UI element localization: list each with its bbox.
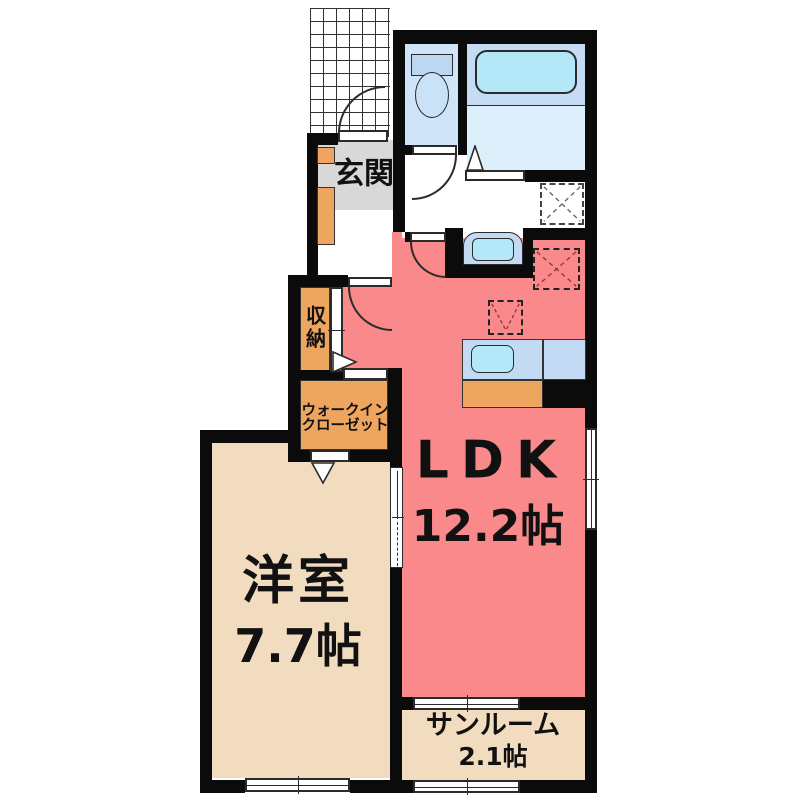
wall-segment	[520, 697, 585, 710]
ldk-side-window	[585, 428, 597, 530]
toilet-bowl	[415, 72, 449, 118]
wall-segment	[200, 430, 297, 443]
sunroom-top-window	[413, 697, 520, 710]
shoe-cabinet	[317, 187, 335, 245]
sunroom-label: サンルーム	[426, 712, 560, 740]
toilet-door-leaf	[412, 145, 457, 155]
sliding-door-panel	[397, 471, 398, 519]
wic-door-triangle-icon	[310, 462, 336, 485]
sunroom-size: 2.1帖	[458, 744, 527, 770]
wall-segment	[585, 530, 597, 793]
wall-segment	[393, 30, 597, 44]
shoe-cabinet	[317, 147, 335, 164]
room-ldk-neck	[392, 232, 402, 287]
wall-segment	[288, 275, 300, 462]
wall-segment	[543, 380, 586, 408]
wall-segment	[393, 30, 405, 232]
sunroom-bottom-window	[413, 780, 520, 793]
wall-segment	[445, 264, 533, 278]
storage-label: 収納	[304, 305, 325, 351]
floor-plan: 玄関 収納 ウォークイン クローゼット LDK 12.2帖 洋室 7.7帖 サン…	[0, 0, 800, 800]
wall-segment	[388, 368, 402, 462]
ldk-label: LDK	[416, 434, 569, 489]
wall-segment	[530, 228, 585, 240]
western-ldk-sliding-door	[390, 467, 403, 568]
refrigerator-space	[533, 248, 580, 290]
entrance-label: 玄関	[334, 158, 394, 190]
bathtub	[475, 50, 577, 94]
equipment-space-marker	[488, 300, 523, 335]
western-room-label: 洋室	[242, 555, 354, 610]
western-room-window	[245, 778, 350, 792]
wic-top-opening	[343, 368, 388, 380]
wall-segment	[585, 30, 597, 428]
washbasin-bowl	[472, 238, 514, 261]
wall-segment	[350, 780, 413, 793]
sliding-door-panel	[397, 522, 398, 566]
bathroom-folding-door-icon	[465, 145, 487, 172]
wall-segment	[458, 44, 467, 155]
kitchen-counter-side	[543, 339, 586, 380]
wall-segment	[390, 568, 402, 793]
wic-bottom-door	[310, 450, 350, 462]
wall-segment	[405, 145, 412, 155]
wall-segment	[520, 780, 597, 793]
wic-label: ウォークイン クローゼット	[302, 404, 389, 434]
wall-segment	[200, 430, 212, 793]
hall-ldk-door-leaf	[348, 277, 392, 287]
toilet-door-swing	[412, 155, 457, 200]
washing-machine-space	[540, 183, 584, 225]
ldk-size: 12.2帖	[412, 504, 565, 550]
washroom-door-leaf	[410, 232, 446, 242]
western-room-size: 7.7帖	[234, 622, 362, 670]
wall-segment	[525, 170, 585, 182]
kitchen-cabinet	[462, 380, 543, 408]
wall-segment	[402, 697, 413, 710]
kitchen-sink	[471, 345, 514, 373]
wall-segment	[307, 133, 338, 145]
wall-segment	[335, 275, 348, 287]
